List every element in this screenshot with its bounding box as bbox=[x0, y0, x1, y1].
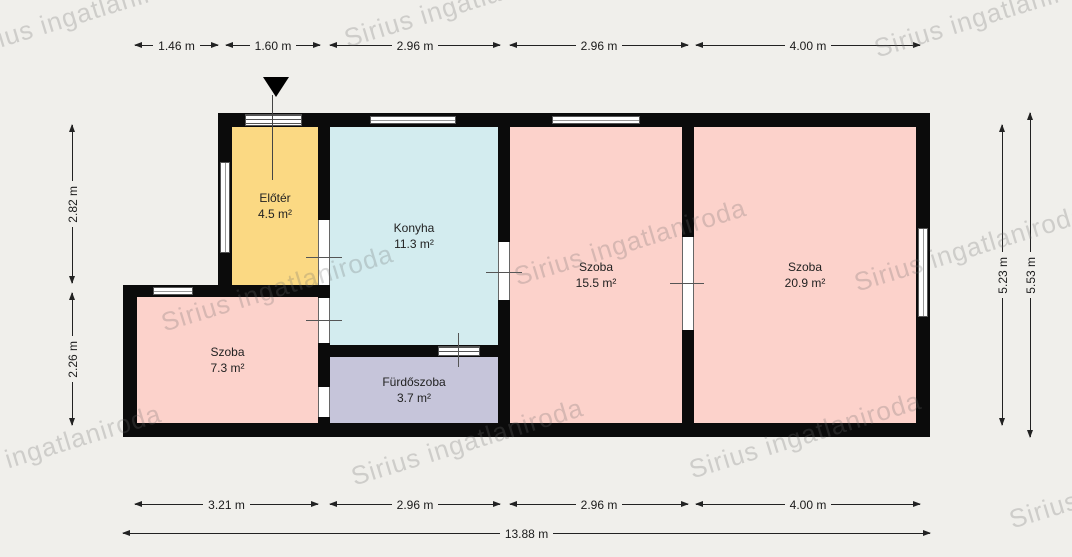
door-tick bbox=[306, 257, 342, 258]
dim-label: 4.00 m bbox=[785, 498, 832, 512]
window-szoba155-top bbox=[552, 116, 640, 124]
door-konyha-szoba155 bbox=[498, 242, 510, 300]
door-tick bbox=[458, 333, 459, 367]
dim-top-3: 2.96 m bbox=[330, 38, 500, 53]
room-area: 15.5 m² bbox=[576, 275, 617, 291]
entrance-door bbox=[245, 114, 302, 126]
dim-bottom-1: 3.21 m bbox=[135, 497, 318, 512]
room-name: Szoba bbox=[576, 259, 617, 275]
dim-left-1: 2.82 m bbox=[65, 125, 80, 283]
dim-left-2: 2.26 m bbox=[65, 293, 80, 425]
room-name: Konyha bbox=[394, 220, 435, 236]
dim-label: 3.21 m bbox=[203, 498, 250, 512]
room-name: Fürdőszoba bbox=[382, 374, 445, 390]
dim-label: 5.23 m bbox=[996, 252, 1010, 299]
room-area: 7.3 m² bbox=[210, 360, 244, 376]
dim-label: 1.46 m bbox=[153, 39, 200, 53]
entrance-arrow-icon bbox=[263, 77, 289, 97]
dim-label: 5.53 m bbox=[1024, 252, 1038, 299]
dim-label: 4.00 m bbox=[785, 39, 832, 53]
room-name: Szoba bbox=[785, 259, 826, 275]
entrance-axis-line bbox=[272, 95, 273, 180]
dim-right-outer: 5.53 m bbox=[1023, 113, 1038, 437]
watermark: Sirius ingatlaniroda bbox=[0, 0, 200, 64]
floorplan-canvas: Sirius ingatlaniroda Sirius ingatlanirod… bbox=[0, 0, 1072, 557]
window-szoba209-right bbox=[918, 228, 928, 317]
dim-bottom-4: 4.00 m bbox=[696, 497, 920, 512]
window-eloter-left bbox=[220, 162, 230, 253]
room-konyha: Konyha11.3 m² bbox=[330, 127, 498, 345]
door-szoba73-furdo bbox=[318, 387, 330, 417]
dim-label: 2.26 m bbox=[66, 336, 80, 383]
wall-bottom bbox=[123, 423, 930, 437]
dim-top-2: 1.60 m bbox=[226, 38, 320, 53]
room-eloter: Előtér4.5 m² bbox=[232, 127, 318, 285]
dim-label: 2.96 m bbox=[576, 39, 623, 53]
dim-label: 2.96 m bbox=[576, 498, 623, 512]
dim-top-1: 1.46 m bbox=[135, 38, 218, 53]
room-name: Szoba bbox=[210, 344, 244, 360]
room-name: Előtér bbox=[258, 190, 292, 206]
dim-label: 1.60 m bbox=[250, 39, 297, 53]
dim-top-4: 2.96 m bbox=[510, 38, 688, 53]
room-szoba-7-3: Szoba7.3 m² bbox=[137, 297, 318, 423]
room-furdoszoba: Fürdőszoba3.7 m² bbox=[330, 357, 498, 423]
watermark: Sirius ingatlaniroda bbox=[870, 0, 1072, 64]
dim-label: 2.96 m bbox=[392, 39, 439, 53]
window-szoba73-top bbox=[153, 287, 193, 295]
room-szoba-15-5: Szoba15.5 m² bbox=[510, 127, 682, 423]
wall-bath-top bbox=[318, 345, 510, 357]
window-konyha-top bbox=[370, 116, 456, 124]
dim-bottom-2: 2.96 m bbox=[330, 497, 500, 512]
room-area: 4.5 m² bbox=[258, 206, 292, 222]
dim-label: 2.96 m bbox=[392, 498, 439, 512]
room-area: 3.7 m² bbox=[382, 390, 445, 406]
dim-label: 13.88 m bbox=[500, 527, 553, 541]
room-area: 20.9 m² bbox=[785, 275, 826, 291]
dim-total-width: 13.88 m bbox=[123, 526, 930, 541]
room-area: 11.3 m² bbox=[394, 236, 435, 252]
dim-label: 2.82 m bbox=[66, 181, 80, 228]
door-tick bbox=[670, 283, 704, 284]
door-tick bbox=[486, 272, 522, 273]
room-szoba-20-9: Szoba20.9 m² bbox=[694, 127, 916, 423]
wall-left-lower bbox=[123, 285, 137, 437]
watermark: Sirius ingatlaniroda bbox=[1005, 435, 1072, 535]
dim-right-inner: 5.23 m bbox=[995, 125, 1010, 425]
dim-top-5: 4.00 m bbox=[696, 38, 920, 53]
dim-bottom-3: 2.96 m bbox=[510, 497, 688, 512]
door-konyha-furdo bbox=[438, 346, 480, 356]
door-tick bbox=[306, 320, 342, 321]
door-eloter-konyha bbox=[318, 220, 330, 285]
